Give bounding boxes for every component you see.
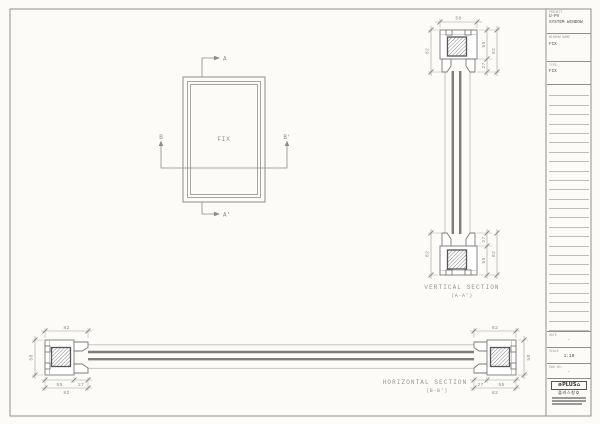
fix-label: FIX — [217, 136, 230, 143]
ruled-line — [549, 96, 589, 105]
ruled-line — [549, 265, 589, 274]
ruled-line — [549, 106, 589, 115]
dim-text: 82 — [491, 48, 497, 54]
dim-text: 58 — [29, 354, 35, 360]
dim-text: 55 — [481, 257, 487, 263]
type-cell: TYPE FIX — [547, 62, 591, 85]
right-jamb-profile — [474, 340, 516, 375]
scale-value: 1:10 — [547, 353, 591, 360]
ruled-line — [549, 200, 589, 209]
logo-cell: ⊕PLUS⌂ 플러스창호 — [547, 379, 591, 416]
logo-house-icon: ⌂ — [576, 382, 580, 388]
section-b-prime-label: B' — [283, 134, 290, 141]
date-value: - — [547, 337, 591, 344]
drawing-canvas: FIX A A' B B' — [0, 0, 600, 424]
arrow-up-icon — [285, 141, 289, 147]
section-b-label: B — [159, 134, 163, 141]
ruled-line — [549, 237, 589, 246]
type-value: FIX — [547, 67, 591, 75]
project-name-line2: SYSTEM WINDOW — [547, 20, 591, 26]
ruled-line — [549, 228, 589, 237]
steel-reinforcement — [52, 348, 71, 367]
ruled-line — [549, 218, 589, 227]
dwg-no-value: - — [547, 369, 591, 376]
ruled-line — [549, 134, 589, 143]
horizontal-section-caption: HORIZONTAL SECTION — [383, 379, 468, 386]
ruled-line — [549, 294, 589, 303]
plan-view: FIX A A' B B' — [159, 56, 291, 219]
ruled-line — [549, 322, 589, 331]
logo-address-line — [552, 397, 586, 399]
ruled-line — [549, 181, 589, 190]
revision-ruled-lines — [547, 85, 591, 332]
vertical-section-caption: VERTICAL SECTION — [424, 284, 499, 291]
glass-lines — [445, 71, 470, 234]
ruled-line — [549, 153, 589, 162]
dim-text: 82 — [491, 251, 497, 257]
ruled-line — [549, 190, 589, 199]
steel-reinforcement — [448, 250, 467, 269]
steel-reinforcement — [448, 37, 467, 56]
dim-text: 58 — [455, 16, 461, 22]
sill-frame-profile — [440, 233, 477, 275]
scale-cell: SCALE 1:10 — [547, 348, 591, 364]
ruled-line — [549, 87, 589, 96]
glass-lines — [88, 345, 474, 369]
company-logo: ⊕PLUS⌂ — [551, 381, 587, 390]
dim-text: 82 — [492, 390, 498, 396]
dim-text: 55 — [498, 382, 504, 388]
arrow-right-icon — [214, 56, 220, 60]
ruled-line — [549, 256, 589, 265]
left-jamb-profile — [45, 340, 88, 375]
dim-text: 82 — [63, 325, 69, 331]
dim-text: 82 — [63, 390, 69, 396]
window-name-value: FIX — [547, 39, 591, 48]
window-name-cell: WINDOW NAME FIX — [547, 34, 591, 62]
ruled-line — [549, 143, 589, 152]
logo-address-line — [552, 400, 586, 402]
ruled-line — [549, 275, 589, 284]
drawing-sheet: FIX A A' B B' — [0, 0, 600, 424]
ruled-line — [549, 303, 589, 312]
dim-text: 55 — [481, 41, 487, 47]
ruled-line — [549, 115, 589, 124]
arrow-up-icon — [159, 141, 163, 147]
logo-brand: PLUS — [562, 382, 576, 388]
arrow-right-icon — [214, 212, 220, 216]
ruled-line — [549, 172, 589, 181]
logo-korean-text: 플러스창호 — [547, 390, 591, 396]
dim-text: 27 — [477, 382, 483, 388]
ruled-line — [549, 209, 589, 218]
section-a-label: A — [223, 56, 227, 63]
vertical-section-caption-sub: (A-A') — [451, 293, 473, 299]
project-cell: PROJECT U-PV SYSTEM WINDOW — [547, 9, 591, 34]
title-block: PROJECT U-PV SYSTEM WINDOW WINDOW NAME F… — [547, 9, 591, 416]
date-cell: DATE - — [547, 332, 591, 348]
ruled-line — [549, 312, 589, 321]
dim-text: 82 — [425, 251, 431, 257]
ruled-line — [549, 247, 589, 256]
ruled-line — [549, 284, 589, 293]
logo-address-line — [552, 403, 582, 405]
dwg-no-cell: DWG NO. - — [547, 364, 591, 379]
section-a-prime-label: A' — [223, 212, 230, 219]
dim-text: 55 — [56, 382, 62, 388]
horizontal-section-caption-sub: (B-B') — [426, 388, 448, 394]
vertical-section: 58 82 55 27 82 82 27 55 82 VERTICAL SECT… — [424, 16, 500, 300]
head-frame-profile — [440, 30, 477, 72]
dim-text: 27 — [481, 236, 487, 242]
dim-text: 27 — [78, 382, 84, 388]
steel-reinforcement — [491, 348, 510, 367]
dim-text: 82 — [425, 48, 431, 54]
dim-text: 27 — [481, 62, 487, 68]
dim-text: 58 — [526, 354, 532, 360]
ruled-line — [549, 162, 589, 171]
dim-text: 82 — [492, 325, 498, 331]
horizontal-section: 82 58 55 27 82 82 58 27 55 82 HORIZONTAL… — [29, 325, 533, 396]
ruled-line — [549, 125, 589, 134]
